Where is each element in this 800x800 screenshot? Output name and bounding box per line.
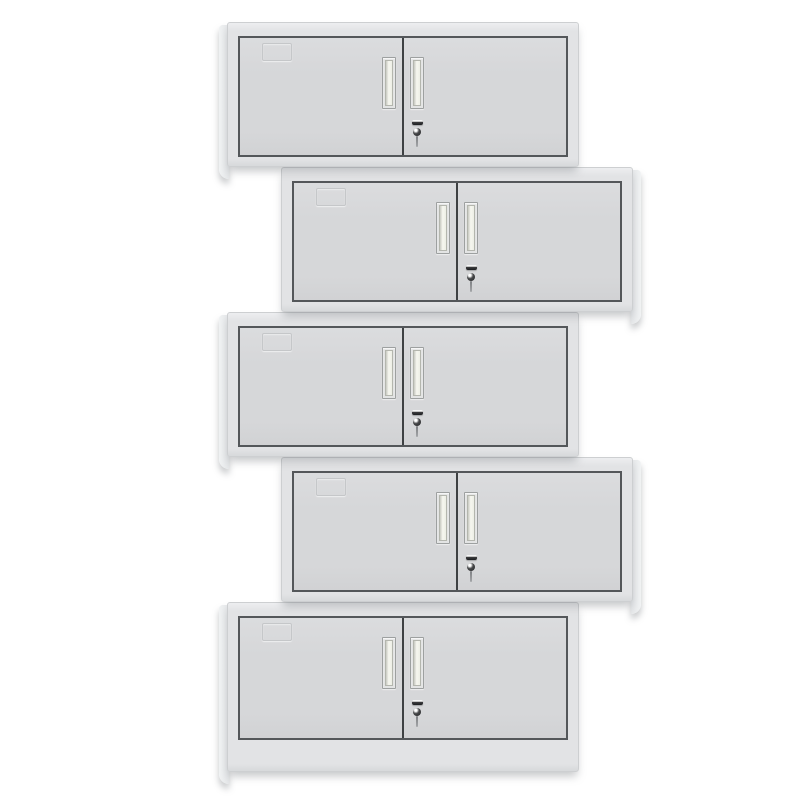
label-card-holder xyxy=(262,623,292,641)
left-door-handle xyxy=(382,347,396,399)
label-card-holder xyxy=(316,478,346,496)
product-photo xyxy=(0,0,800,800)
key-head xyxy=(413,128,421,136)
lock-latch xyxy=(412,410,423,415)
handle-recess xyxy=(385,640,393,686)
left-door xyxy=(294,473,456,590)
cabinet-front xyxy=(281,457,633,602)
key-shaft xyxy=(416,716,418,727)
cabinet-front xyxy=(227,312,579,457)
cabinet-front xyxy=(281,167,633,312)
cabinet-3 xyxy=(227,312,579,457)
handle-recess xyxy=(439,205,447,251)
lock-latch xyxy=(412,120,423,125)
left-door-handle xyxy=(436,492,450,544)
right-door-handle xyxy=(410,347,424,399)
right-door-handle xyxy=(464,492,478,544)
cabinet-4 xyxy=(281,457,633,602)
handle-recess xyxy=(385,60,393,106)
handle-recess xyxy=(385,350,393,396)
right-door xyxy=(404,38,566,155)
left-door-handle xyxy=(382,57,396,109)
key-head xyxy=(467,563,475,571)
handle-recess xyxy=(413,60,421,106)
keyhole-lock xyxy=(412,700,424,727)
cabinet-front xyxy=(227,22,579,167)
key-shaft xyxy=(416,426,418,437)
right-door-handle xyxy=(464,202,478,254)
cabinet-doors xyxy=(238,616,568,740)
cabinet-doors xyxy=(292,471,622,592)
key-head xyxy=(413,708,421,716)
right-door xyxy=(458,473,620,590)
label-card-holder xyxy=(262,333,292,351)
handle-recess xyxy=(413,640,421,686)
left-door-handle xyxy=(436,202,450,254)
cabinet-doors xyxy=(238,326,568,447)
lock-latch xyxy=(466,555,477,560)
keyhole-lock xyxy=(412,410,424,437)
keyhole-lock xyxy=(466,555,478,582)
cabinet-doors xyxy=(238,36,568,157)
label-card-holder xyxy=(262,43,292,61)
cabinet-doors xyxy=(292,181,622,302)
left-door xyxy=(240,328,402,445)
left-door-handle xyxy=(382,637,396,689)
right-door xyxy=(404,328,566,445)
key-shaft xyxy=(470,281,472,292)
key-shaft xyxy=(470,571,472,582)
handle-recess xyxy=(467,205,475,251)
key-head xyxy=(413,418,421,426)
cabinet-5 xyxy=(227,602,579,772)
left-door xyxy=(240,618,402,738)
cabinet-2 xyxy=(281,167,633,312)
cabinet-1 xyxy=(227,22,579,167)
keyhole-lock xyxy=(466,265,478,292)
left-door xyxy=(294,183,456,300)
right-door-handle xyxy=(410,637,424,689)
handle-recess xyxy=(413,350,421,396)
lock-latch xyxy=(466,265,477,270)
label-card-holder xyxy=(316,188,346,206)
left-door xyxy=(240,38,402,155)
lock-latch xyxy=(412,700,423,705)
right-door-handle xyxy=(410,57,424,109)
handle-recess xyxy=(439,495,447,541)
cabinet-front xyxy=(227,602,579,772)
right-door xyxy=(404,618,566,738)
keyhole-lock xyxy=(412,120,424,147)
key-shaft xyxy=(416,136,418,147)
key-head xyxy=(467,273,475,281)
handle-recess xyxy=(467,495,475,541)
right-door xyxy=(458,183,620,300)
